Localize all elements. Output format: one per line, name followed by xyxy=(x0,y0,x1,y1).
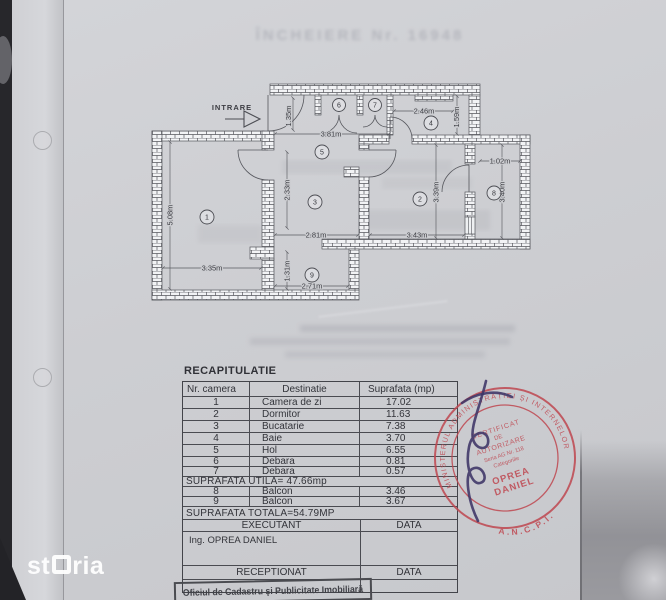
cell-nr: 6 xyxy=(183,457,250,466)
underlying-page-edge xyxy=(12,0,63,600)
room-number-7: 7 xyxy=(373,102,377,109)
receptionat-label: RECEPTIONAT xyxy=(183,566,361,579)
stamp-ring-bottom: A.N.C.P.I. xyxy=(495,508,559,543)
table-header-row: Nr. camera Destinatie Suprafata (mp) xyxy=(183,382,457,396)
table-row: 9 Balcon 3.67 xyxy=(183,496,457,506)
cell-destinatie: Debara xyxy=(250,457,360,466)
room-number-6: 6 xyxy=(337,102,341,109)
cell-nr: 9 xyxy=(183,497,250,506)
dim-508: 5.08m xyxy=(166,205,175,226)
header-nr-camera: Nr. camera xyxy=(183,382,250,396)
executant-label: EXECUTANT xyxy=(183,520,361,531)
room-number-9: 9 xyxy=(310,272,314,279)
room-number-5: 5 xyxy=(320,149,324,156)
storia-square-o-icon xyxy=(52,555,71,574)
cell-destinatie: Bucatarie xyxy=(250,421,360,432)
total-area-row: SUPRAFATA TOTALA=54.79MP xyxy=(183,507,457,519)
dim-102: 1.02m xyxy=(490,157,511,166)
executant-row: EXECUTANT DATA xyxy=(183,519,457,531)
floor-plan: 3.81m 1.35m 2.46m 1.59m 1.02m 3.40m 3.39… xyxy=(132,82,542,312)
watermark-ria: ria xyxy=(72,552,104,580)
table-row: 1 Camera de zi 17.02 xyxy=(183,396,457,408)
dim-343: 3.43m xyxy=(407,231,428,240)
entrance-arrow-icon xyxy=(225,111,260,127)
table-row: 2 Dormitor 11.63 xyxy=(183,408,457,420)
cell-nr: 7 xyxy=(183,467,250,476)
dim-131: 1.31m xyxy=(283,261,292,282)
cell-destinatie: Balcon xyxy=(250,487,360,496)
table-row: 7 Debara 0.57 xyxy=(183,466,457,476)
cell-nr: 1 xyxy=(183,397,250,408)
table-row: 5 Hol 6.55 xyxy=(183,444,457,456)
cell-nr: 8 xyxy=(183,487,250,496)
cell-nr: 4 xyxy=(183,433,250,444)
cell-destinatie: Debara xyxy=(250,467,360,476)
receptionat-row: RECEPTIONAT DATA xyxy=(183,565,457,579)
cell-destinatie: Hol xyxy=(250,445,360,456)
dim-233: 2.33m xyxy=(283,180,292,201)
dim-246: 2.46m xyxy=(414,107,435,116)
dim-271: 2.71m xyxy=(302,282,323,291)
table-title: RECAPITULATIE xyxy=(184,365,276,377)
dim-159: 1.59m xyxy=(452,107,461,128)
dim-381: 3.81m xyxy=(321,130,342,139)
cell-nr: 3 xyxy=(183,421,250,432)
cadastru-stamp-box: Oficiul de Cadastru şi Publicitate Imobi… xyxy=(174,578,372,600)
cadastru-stamp-text: Oficiul de Cadastru şi Publicitate Imobi… xyxy=(183,584,363,599)
cell-destinatie: Dormitor xyxy=(250,409,360,420)
recap-table: Nr. camera Destinatie Suprafata (mp) 1 C… xyxy=(182,381,458,593)
cell-destinatie: Baie xyxy=(250,433,360,444)
storia-watermark: stria xyxy=(27,552,104,581)
dim-281: 2.81m xyxy=(306,231,327,240)
dim-339: 3.39m xyxy=(432,182,441,203)
table-row: 4 Baie 3.70 xyxy=(183,432,457,444)
table-row: 3 Bucatarie 7.38 xyxy=(183,420,457,432)
dim-335: 3.35m xyxy=(202,264,223,273)
stamp-artwork: MINISTERUL ADMINISTRAȚIEI ȘI INTERNELOR … xyxy=(420,373,590,543)
window xyxy=(465,217,475,234)
room-number-3: 3 xyxy=(313,199,317,206)
bleed-through-text xyxy=(285,351,485,358)
bleed-through-text xyxy=(300,325,515,332)
room-number-2: 2 xyxy=(418,196,422,203)
faded-heading: ÎNCHEIERE Nr. 16948 xyxy=(222,27,498,44)
stamp-line-2: DE xyxy=(494,434,504,442)
dim-135: 1.35m xyxy=(284,106,293,127)
cell-nr: 2 xyxy=(183,409,250,420)
watermark-st: st xyxy=(27,552,50,580)
room-number-8: 8 xyxy=(492,190,496,197)
cell-destinatie: Balcon xyxy=(250,497,360,506)
round-red-stamp: MINISTERUL ADMINISTRAȚIEI ȘI INTERNELOR … xyxy=(420,373,590,543)
useful-area-row: SUPRAFATA UTILA= 47.66mp xyxy=(183,477,457,486)
executant-name-row: Ing. OPREA DANIEL xyxy=(183,531,457,565)
scanned-document-photo: ÎNCHEIERE Nr. 16948 xyxy=(0,0,666,600)
room-number-1: 1 xyxy=(205,214,209,221)
data-label: DATA xyxy=(361,566,457,579)
svg-text:A.N.C.P.I.: A.N.C.P.I. xyxy=(495,508,559,543)
bleed-through-text xyxy=(250,338,510,345)
cell-nr: 5 xyxy=(183,445,250,456)
entrance-label: INTRARE xyxy=(212,103,252,112)
table-row: 6 Debara 0.81 xyxy=(183,456,457,466)
executant-name: Ing. OPREA DANIEL xyxy=(183,532,361,565)
cell-destinatie: Camera de zi xyxy=(250,397,360,408)
hole-punch-top xyxy=(33,131,52,150)
hole-punch-bottom xyxy=(33,368,52,387)
table-row: 8 Balcon 3.46 xyxy=(183,486,457,496)
room-number-4: 4 xyxy=(429,120,433,127)
header-destinatie: Destinatie xyxy=(250,382,360,396)
